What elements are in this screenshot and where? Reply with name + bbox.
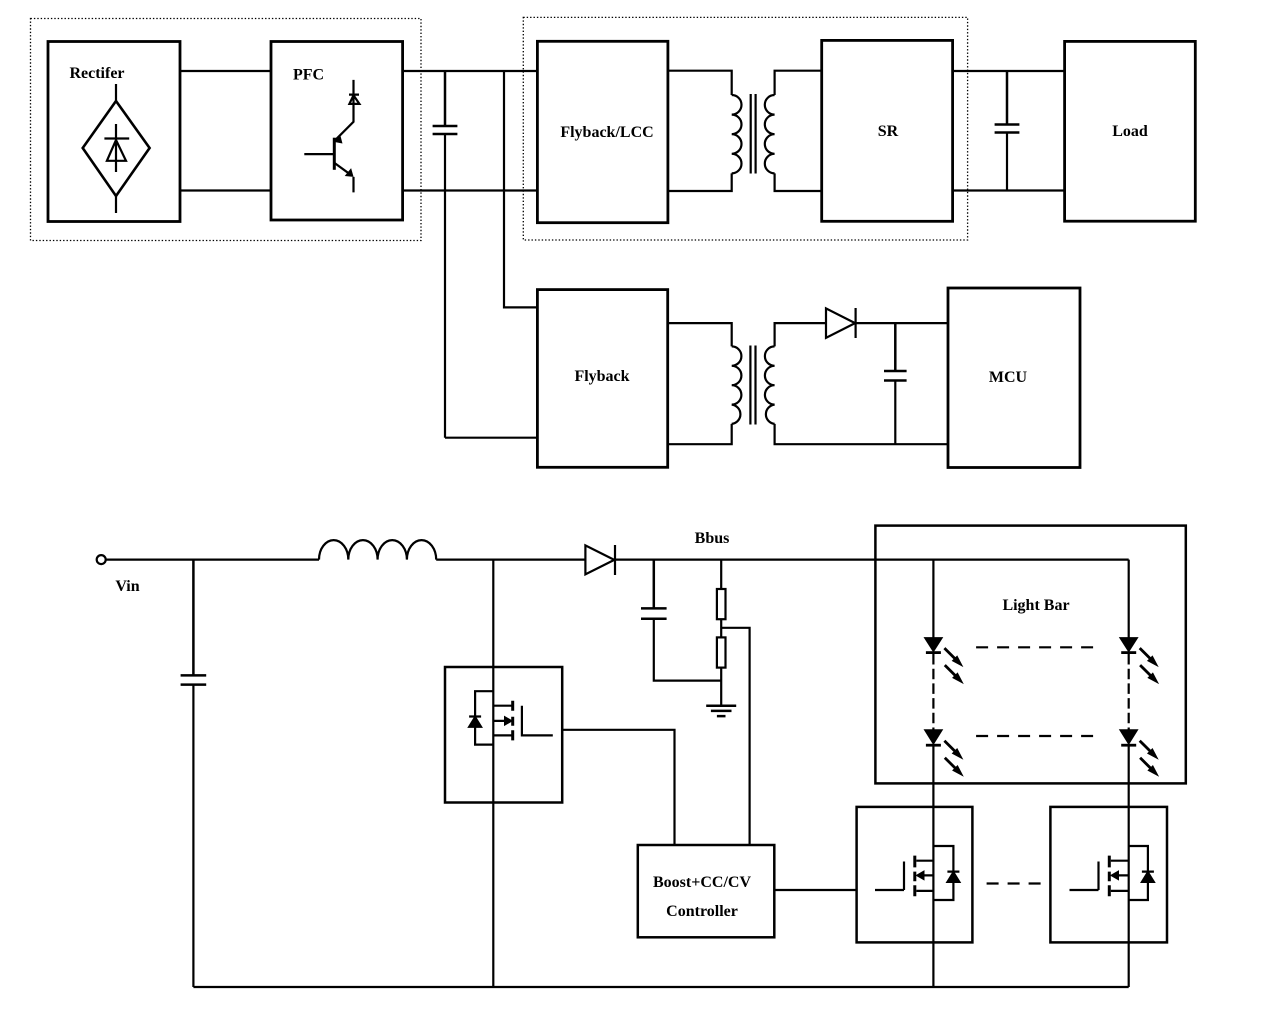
svg-text:Light Bar: Light Bar bbox=[1002, 597, 1069, 614]
svg-text:Flyback: Flyback bbox=[574, 368, 629, 385]
svg-text:SR: SR bbox=[878, 123, 899, 140]
svg-text:Flyback/LCC: Flyback/LCC bbox=[560, 124, 653, 141]
svg-text:Boost+CC/CV: Boost+CC/CV bbox=[653, 874, 751, 891]
svg-text:Rectifer: Rectifer bbox=[69, 65, 124, 82]
svg-text:Vin: Vin bbox=[115, 578, 139, 595]
svg-text:Controller: Controller bbox=[666, 903, 738, 920]
svg-text:Load: Load bbox=[1112, 123, 1148, 140]
svg-text:MCU: MCU bbox=[989, 369, 1028, 386]
svg-text:Bbus: Bbus bbox=[695, 530, 730, 547]
svg-text:PFC: PFC bbox=[293, 67, 324, 84]
